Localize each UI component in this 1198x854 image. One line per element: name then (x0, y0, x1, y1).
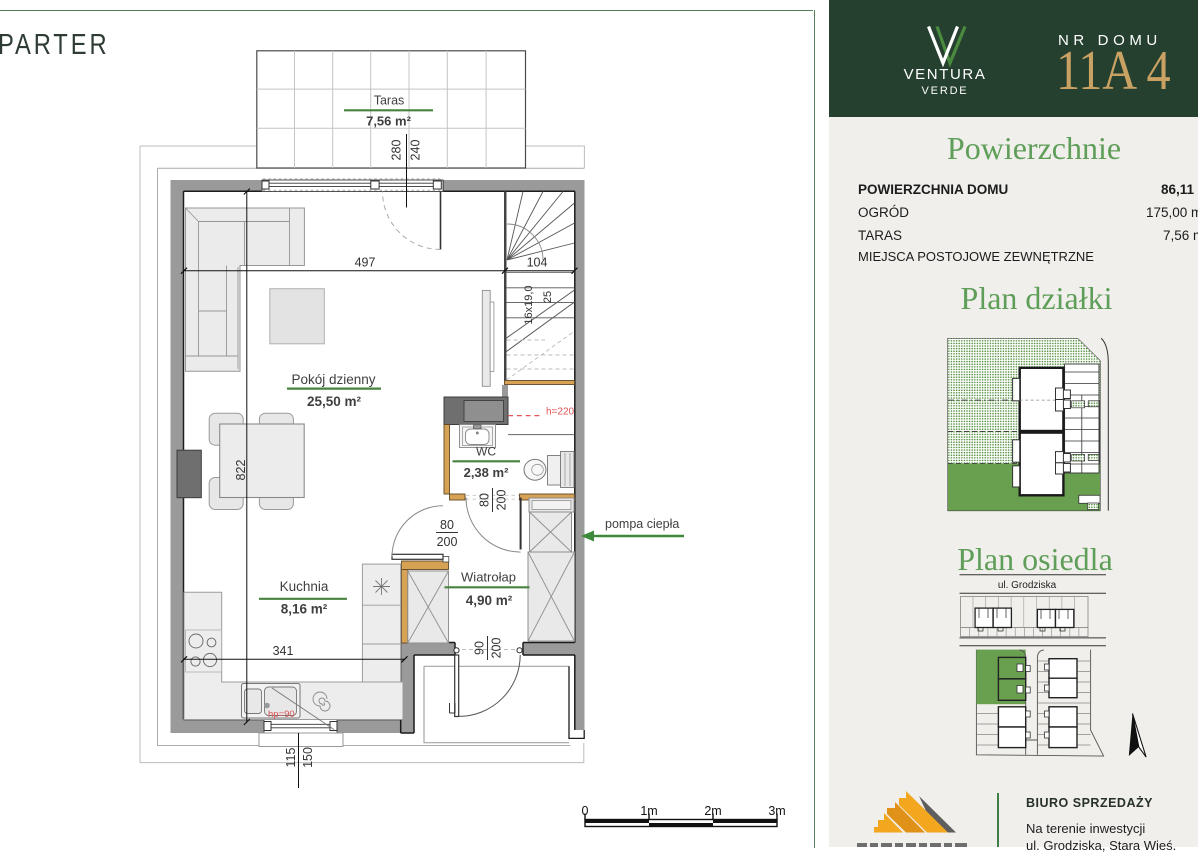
svg-text:240: 240 (409, 140, 423, 161)
svg-text:8,16 m²: 8,16 m² (281, 602, 328, 617)
svg-text:4,90 m²: 4,90 m² (466, 593, 513, 608)
svg-text:ul. Grodziska: ul. Grodziska (998, 580, 1057, 591)
svg-text:90: 90 (473, 641, 487, 655)
svg-text:115: 115 (284, 747, 298, 767)
svg-text:h=220: h=220 (546, 407, 575, 418)
svg-text:Pokój dzienny: Pokój dzienny (291, 372, 375, 387)
svg-text:2,38 m²: 2,38 m² (464, 465, 509, 480)
svg-text:200: 200 (495, 490, 509, 511)
svg-text:497: 497 (355, 256, 376, 270)
svg-text:150: 150 (301, 747, 315, 768)
svg-text:25: 25 (542, 291, 554, 303)
svg-text:Kuchnia: Kuchnia (280, 579, 329, 594)
svg-text:80: 80 (440, 518, 454, 532)
svg-text:341: 341 (273, 644, 294, 658)
svg-text:16x19,0: 16x19,0 (523, 285, 535, 324)
svg-text:WC: WC (476, 445, 496, 459)
svg-text:822: 822 (234, 460, 248, 481)
svg-text:80: 80 (478, 493, 492, 507)
svg-text:pompa ciepła: pompa ciepła (605, 517, 679, 531)
svg-text:hp=90: hp=90 (268, 709, 295, 720)
svg-text:200: 200 (437, 535, 458, 549)
svg-text:7,56 m²: 7,56 m² (366, 114, 411, 129)
svg-text:Wiatrołap: Wiatrołap (461, 570, 516, 585)
svg-text:200: 200 (490, 638, 504, 659)
svg-text:280: 280 (390, 140, 404, 161)
svg-text:Taras: Taras (374, 94, 405, 108)
svg-text:25,50 m²: 25,50 m² (307, 394, 362, 409)
svg-text:104: 104 (527, 256, 548, 270)
